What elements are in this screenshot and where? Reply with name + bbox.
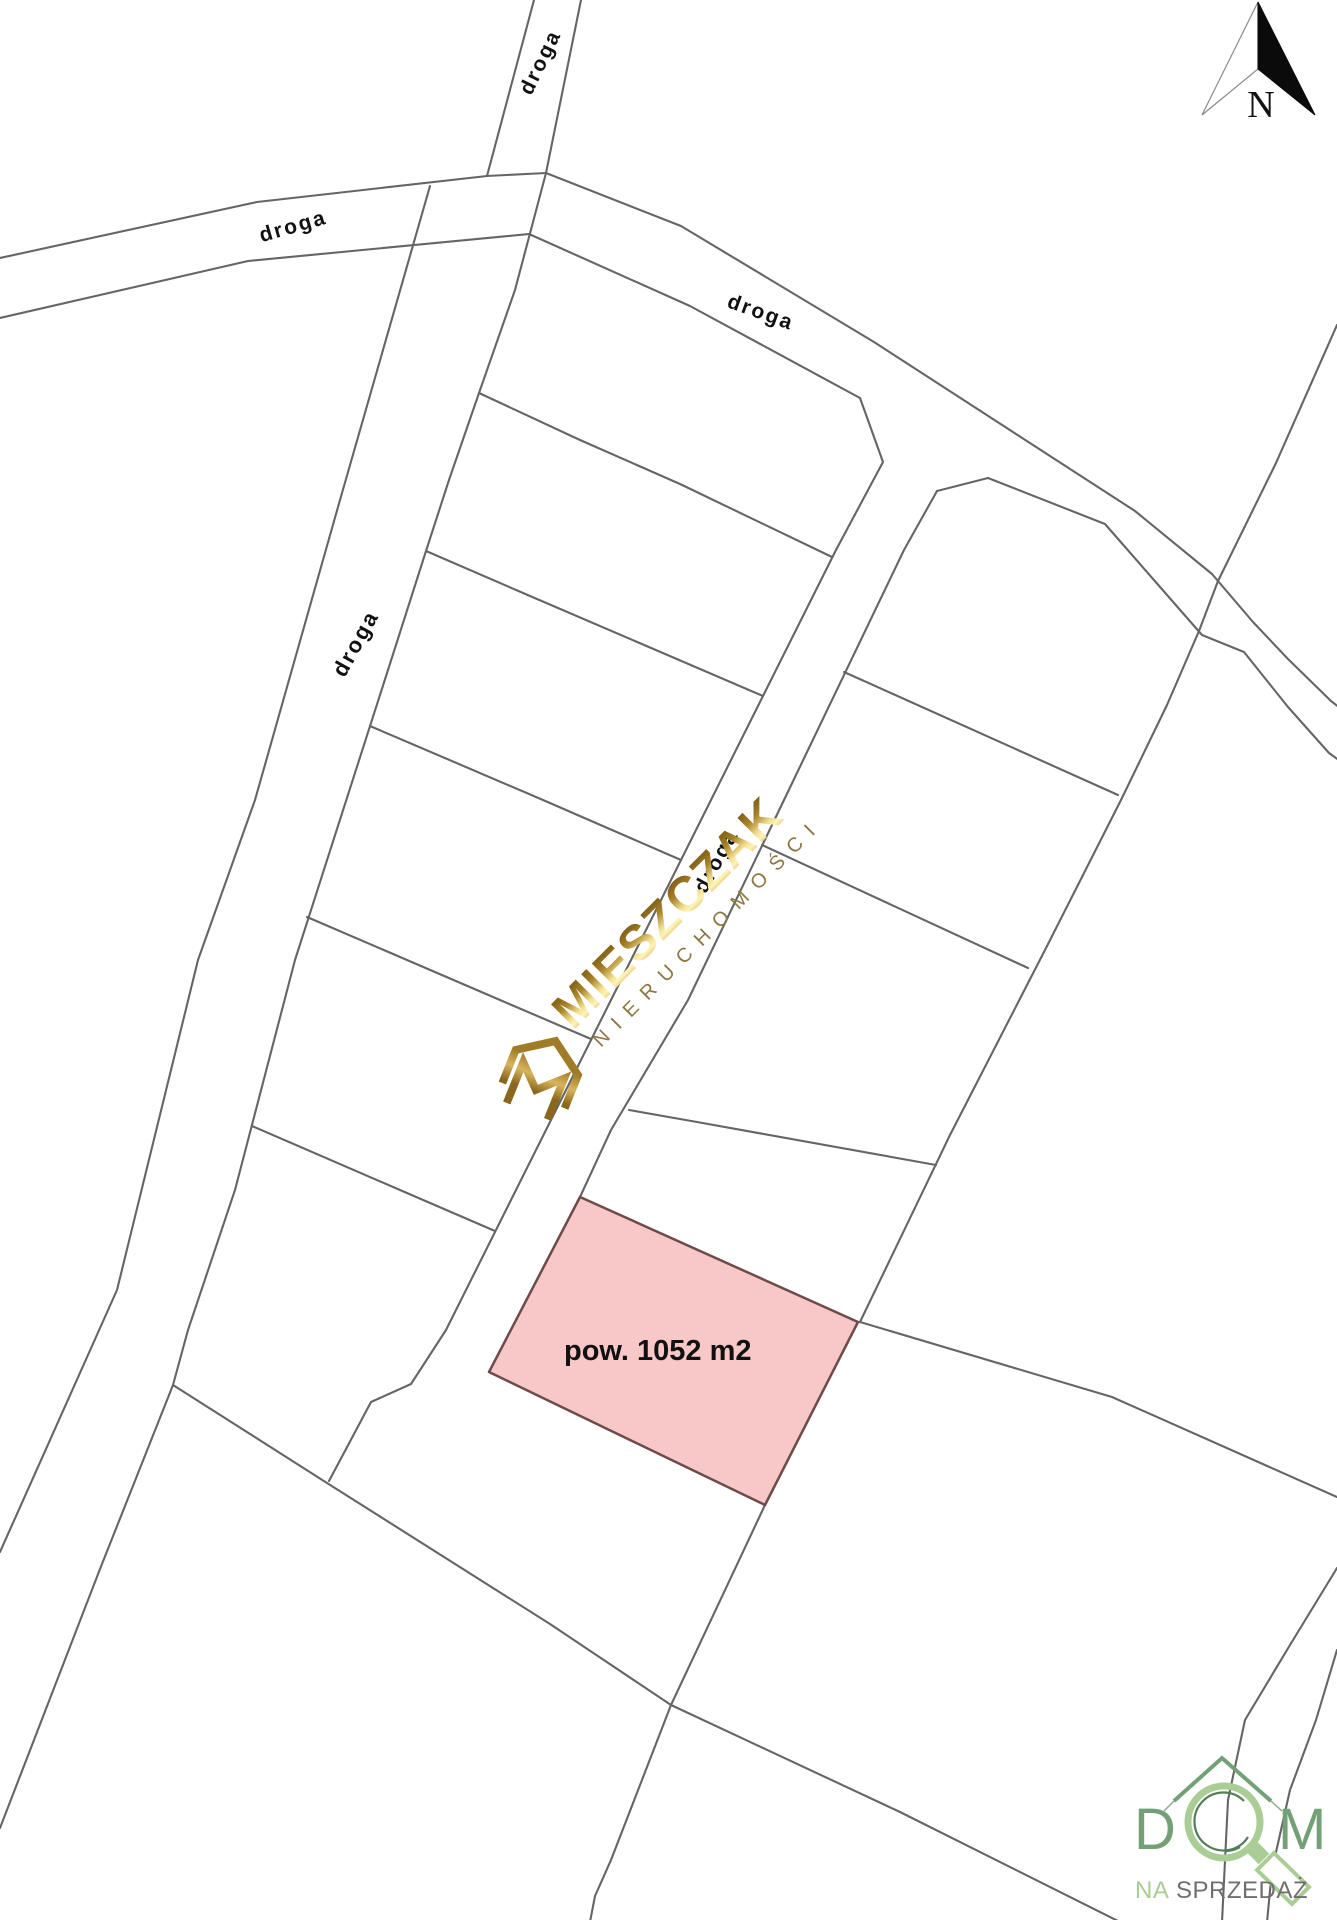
svg-text:NA: NA bbox=[1135, 1877, 1169, 1904]
svg-text:droga: droga bbox=[515, 26, 566, 98]
svg-text:MIESZCZAK: MIESZCZAK bbox=[541, 787, 793, 1039]
svg-text:N: N bbox=[1247, 84, 1274, 126]
svg-text:D: D bbox=[1134, 1797, 1176, 1862]
svg-text:M: M bbox=[1278, 1797, 1326, 1862]
svg-text:droga: droga bbox=[724, 290, 797, 335]
svg-text:SPRZEDAŻ: SPRZEDAŻ bbox=[1176, 1877, 1308, 1904]
svg-text:droga: droga bbox=[257, 206, 330, 247]
svg-text:pow. 1052 m2: pow. 1052 m2 bbox=[564, 1335, 752, 1367]
svg-text:droga: droga bbox=[327, 606, 384, 681]
